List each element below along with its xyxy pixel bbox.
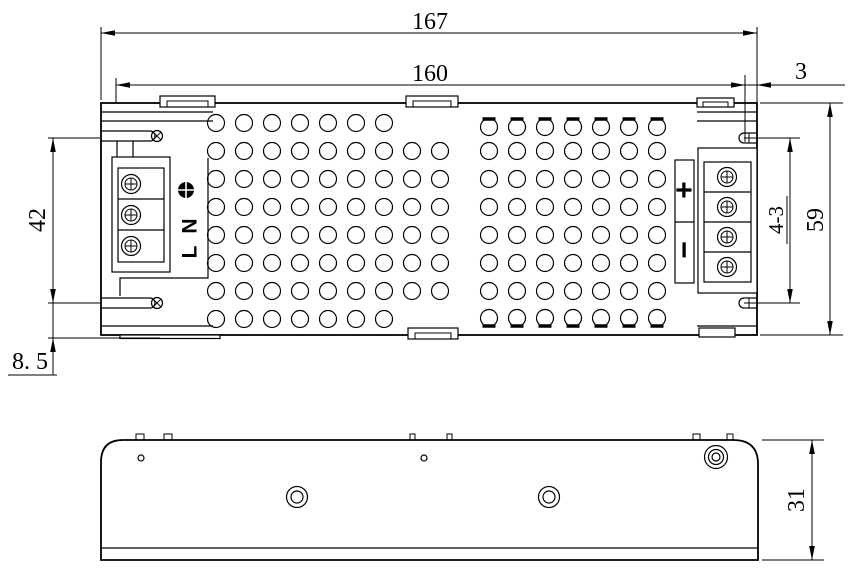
dim-text-4-3: 4-3 [764,206,788,234]
dim-text-3: 3 [795,59,807,85]
positive-terminal-label: + [668,181,701,199]
line-terminal-label: L [179,245,202,258]
dim-text-160: 160 [412,61,448,87]
neutral-terminal-label: N [179,218,202,233]
dim-body-height: 31 [762,440,824,560]
dim-text-167: 167 [412,9,448,35]
dim-text-31: 31 [784,488,810,512]
dim-text-42: 42 [25,208,51,232]
side-view [101,434,758,560]
drawing-canvas: N L + − [0,0,849,574]
dim-right-end-offset: 3 [757,59,807,88]
dim-overall-length: 167 [101,9,757,102]
top-view: N L + − [101,96,757,339]
side-view-outline [101,440,758,560]
dim-mount-spacing: 42 [25,138,100,303]
dim-text-8-5: 8. 5 [12,349,48,375]
dim-text-59: 59 [803,208,829,232]
negative-terminal-label: − [668,241,701,259]
